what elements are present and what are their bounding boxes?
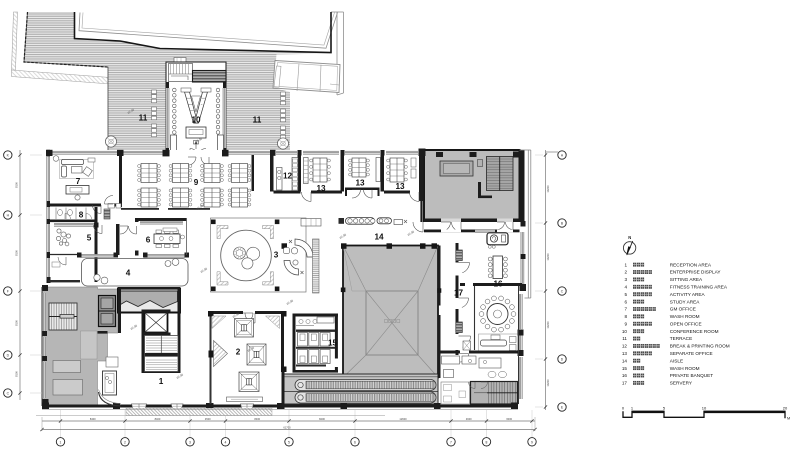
svg-text:13: 13 <box>395 182 405 191</box>
svg-text:4: 4 <box>624 284 627 289</box>
svg-text:FITNESS TRAINING AREA: FITNESS TRAINING AREA <box>670 284 728 289</box>
svg-text:11: 11 <box>253 116 262 125</box>
svg-text:2: 2 <box>624 270 627 275</box>
svg-text:12600: 12600 <box>399 417 407 421</box>
svg-text:7: 7 <box>450 440 452 444</box>
svg-text:10: 10 <box>702 405 707 410</box>
svg-text:6: 6 <box>354 440 356 444</box>
svg-text:BREAK & PRINTING ROOM: BREAK & PRINTING ROOM <box>670 344 730 349</box>
svg-text:20: 20 <box>783 405 788 410</box>
svg-text:13: 13 <box>355 179 365 188</box>
svg-text:5: 5 <box>288 440 290 444</box>
svg-text:WASH ROOM: WASH ROOM <box>670 314 700 319</box>
svg-text:11: 11 <box>139 114 148 123</box>
svg-text:11: 11 <box>622 336 627 341</box>
svg-text:WASH ROOM: WASH ROOM <box>670 366 700 371</box>
svg-text:8400: 8400 <box>254 417 260 421</box>
svg-text:13: 13 <box>316 184 326 193</box>
svg-text:1: 1 <box>60 440 62 444</box>
svg-text:8: 8 <box>79 211 84 220</box>
svg-text:1: 1 <box>159 377 164 386</box>
svg-text:ACTIVITY AREA: ACTIVITY AREA <box>670 292 706 297</box>
svg-text:N: N <box>628 235 631 240</box>
svg-text:SITTING AREA: SITTING AREA <box>670 277 703 282</box>
svg-text:PRIVATE BANQUET: PRIVATE BANQUET <box>670 373 713 378</box>
svg-text:TERRACE: TERRACE <box>670 336 692 341</box>
svg-text:8100: 8100 <box>15 182 19 188</box>
svg-text:12: 12 <box>622 344 628 349</box>
svg-text:10200: 10200 <box>546 253 550 261</box>
svg-text:15: 15 <box>622 366 628 371</box>
svg-text:5: 5 <box>624 292 627 297</box>
svg-text:9: 9 <box>194 178 199 187</box>
svg-text:8100: 8100 <box>15 371 19 377</box>
svg-text:8: 8 <box>486 440 488 444</box>
svg-text:8100: 8100 <box>15 250 19 256</box>
svg-text:4: 4 <box>225 440 227 444</box>
svg-text:1: 1 <box>624 262 627 267</box>
svg-text:8: 8 <box>624 314 627 319</box>
svg-text:7: 7 <box>76 177 81 186</box>
svg-text:4: 4 <box>126 269 131 278</box>
svg-text:CONFERENCE ROOM: CONFERENCE ROOM <box>670 329 719 334</box>
svg-text:3: 3 <box>624 277 627 282</box>
svg-text:10200: 10200 <box>546 321 550 329</box>
svg-text:3: 3 <box>274 251 279 260</box>
svg-text:3: 3 <box>189 440 191 444</box>
svg-text:16: 16 <box>622 373 628 378</box>
svg-text:OPEN OFFICE: OPEN OFFICE <box>670 321 702 326</box>
svg-text:9: 9 <box>624 321 627 326</box>
svg-text:F: F <box>7 290 9 294</box>
svg-text:16: 16 <box>493 280 503 289</box>
svg-text:17: 17 <box>454 289 464 298</box>
svg-text:8400: 8400 <box>90 417 96 421</box>
svg-text:2: 2 <box>236 348 241 357</box>
svg-text:6: 6 <box>624 299 627 304</box>
svg-text:14: 14 <box>374 233 384 242</box>
svg-text:10: 10 <box>191 116 201 125</box>
svg-text:RECEPTION AREA: RECEPTION AREA <box>670 262 712 267</box>
svg-text:4600: 4600 <box>466 417 472 421</box>
svg-text:ENTERPRISE DISPLAY: ENTERPRISE DISPLAY <box>670 270 722 275</box>
svg-text:AISLE: AISLE <box>670 358 683 363</box>
svg-text:12: 12 <box>283 172 293 181</box>
svg-text:9: 9 <box>531 440 533 444</box>
svg-text:14: 14 <box>622 358 628 363</box>
svg-text:8100: 8100 <box>15 320 19 326</box>
svg-text:10200: 10200 <box>546 185 550 193</box>
svg-text:SERVERY: SERVERY <box>670 381 693 386</box>
svg-text:6000: 6000 <box>506 417 512 421</box>
svg-text:STUDY AREA: STUDY AREA <box>670 299 700 304</box>
svg-text:2: 2 <box>124 440 126 444</box>
svg-text:13: 13 <box>622 351 628 356</box>
svg-text:GM OFFICE: GM OFFICE <box>670 307 696 312</box>
svg-text:M: M <box>787 417 790 421</box>
svg-text:10200: 10200 <box>546 379 550 387</box>
svg-text:5: 5 <box>87 234 92 243</box>
svg-text:SEPARATE OFFICE: SEPARATE OFFICE <box>670 351 713 356</box>
svg-text:8400: 8400 <box>155 417 161 421</box>
svg-text:4500: 4500 <box>205 417 211 421</box>
svg-text:61700: 61700 <box>283 425 291 429</box>
svg-text:7: 7 <box>624 307 627 312</box>
svg-text:17: 17 <box>622 381 628 386</box>
svg-text:6: 6 <box>146 236 151 245</box>
svg-text:10: 10 <box>622 329 628 334</box>
svg-text:15: 15 <box>328 339 338 348</box>
svg-text:8400: 8400 <box>319 417 325 421</box>
